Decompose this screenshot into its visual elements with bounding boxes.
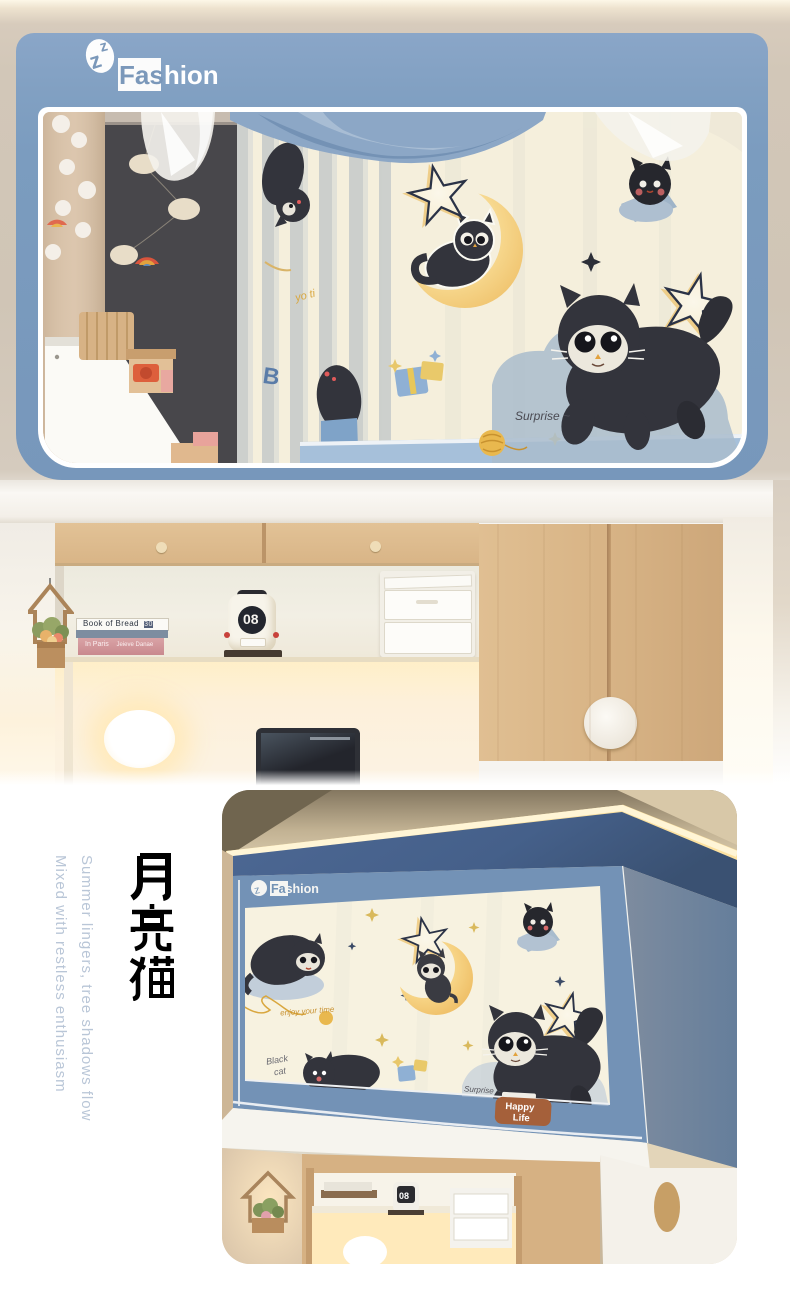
svg-text:Happy: Happy: [505, 1101, 535, 1114]
svg-text:Fashion: Fashion: [271, 882, 319, 896]
svg-text:cat: cat: [273, 1065, 287, 1077]
svg-text:Life: Life: [512, 1112, 529, 1124]
svg-text:08: 08: [399, 1191, 409, 1201]
svg-text:Surprise ~: Surprise ~: [515, 409, 570, 423]
